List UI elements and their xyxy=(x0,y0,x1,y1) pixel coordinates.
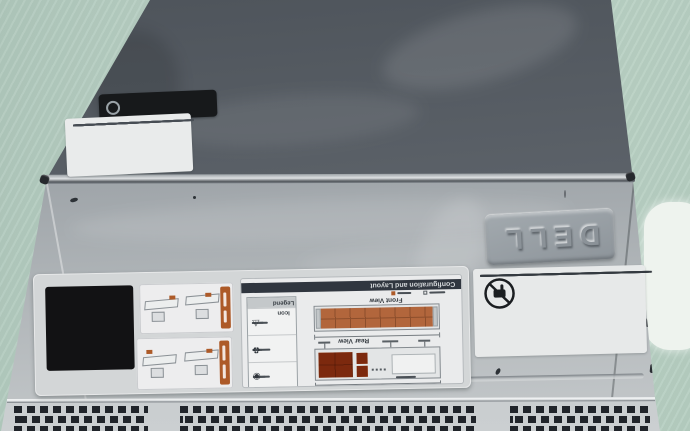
config-title-bar: Configuration and Layout xyxy=(241,279,461,293)
warning-label xyxy=(473,265,647,357)
module-block xyxy=(356,353,367,364)
vent-grille xyxy=(510,426,650,431)
legend-recycle-icon: ♻ xyxy=(252,343,260,354)
vent-grille xyxy=(180,406,476,413)
front-view-label: Front View xyxy=(369,296,402,304)
vent-grille xyxy=(14,426,148,431)
vent-grille xyxy=(180,426,476,431)
dimension-line xyxy=(315,380,441,387)
speck xyxy=(70,197,79,203)
orange-accent xyxy=(205,293,211,297)
server-photo: DELL DELL.COM/QRL xyxy=(0,0,690,431)
config-title: Configuration and Layout xyxy=(370,280,455,289)
scratch xyxy=(564,190,566,198)
blank-bay xyxy=(391,353,435,374)
vent-grille xyxy=(510,416,650,423)
vent-grille xyxy=(14,406,148,413)
speck xyxy=(193,196,196,199)
orange-accent xyxy=(146,350,152,354)
drive-bays xyxy=(321,307,433,329)
info-label xyxy=(65,113,194,177)
vent-grille xyxy=(180,416,476,423)
rail-illustration xyxy=(184,349,219,361)
step-tab xyxy=(219,340,230,384)
icon-legend: Icon Legend ⚠ ♻ ◉ xyxy=(246,296,298,388)
dimension-line xyxy=(314,332,440,339)
config-panel: Configuration and Layout Icon Legend ⚠ ♻… xyxy=(240,274,464,388)
text-line xyxy=(73,122,133,127)
legend-row: ⚠ xyxy=(248,307,297,335)
rail-instruction-panel-1 xyxy=(139,282,234,334)
config-layout-label: DELL.COM/QRL Quick Resource Locator xyxy=(33,266,471,396)
cover-seam xyxy=(45,173,635,184)
dell-badge: DELL xyxy=(485,209,615,266)
legend-warning-icon: ⚠ xyxy=(252,316,260,327)
vent-grille xyxy=(510,406,650,413)
legend-row: ♻ xyxy=(248,334,297,362)
qrl-panel: DELL.COM/QRL Quick Resource Locator xyxy=(45,285,135,371)
rail-illustration xyxy=(185,293,220,305)
dell-badge-text: DELL xyxy=(499,218,602,255)
no-touch-icon xyxy=(480,274,519,313)
rail-instruction-panel-2 xyxy=(136,336,233,390)
scuff-mark xyxy=(374,0,585,107)
vent-grille xyxy=(14,416,148,423)
orange-accent xyxy=(169,295,175,299)
rear-view-diagram xyxy=(314,346,441,380)
dell-roundel-icon xyxy=(106,100,121,115)
speck xyxy=(495,367,502,375)
rail-illustration xyxy=(144,298,179,310)
orange-accent xyxy=(206,349,212,353)
text-line xyxy=(480,272,583,277)
front-view-diagram xyxy=(314,303,440,331)
legend-row: ◉ xyxy=(249,361,298,388)
rail-illustration xyxy=(142,354,177,366)
rear-view-label: Rear View xyxy=(338,337,369,345)
legend-drive-icon: ◉ xyxy=(253,370,261,381)
step-tab xyxy=(220,286,231,328)
psu-blocks xyxy=(318,352,352,378)
white-object xyxy=(644,202,690,350)
module-block xyxy=(357,366,368,377)
